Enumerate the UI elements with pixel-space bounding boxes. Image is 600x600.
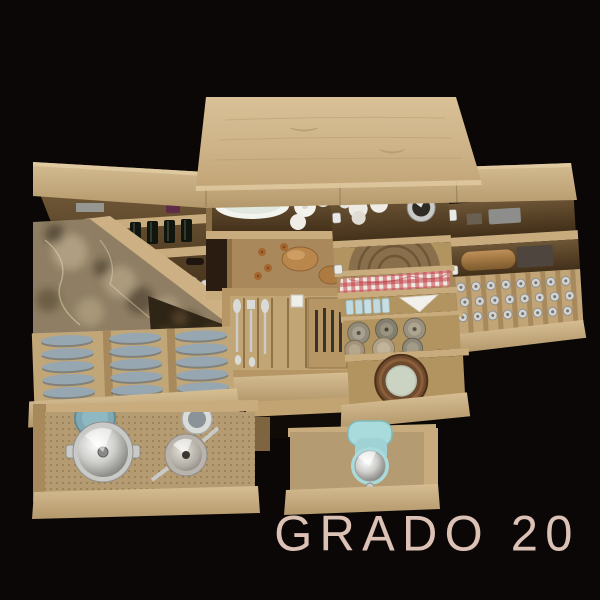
top-panel xyxy=(196,97,482,191)
product-render-page: GRADO 20 xyxy=(0,0,600,600)
plates xyxy=(41,330,229,400)
glass-plate xyxy=(385,365,417,397)
pots-and-pans-drawer xyxy=(32,398,260,519)
cutlery-drawer xyxy=(218,288,356,403)
stand-mixer-drawer xyxy=(284,421,440,515)
wood-grain-box xyxy=(461,249,516,271)
brand-wordmark: GRADO 20 xyxy=(275,504,580,562)
small-box xyxy=(291,295,303,307)
hinge xyxy=(334,265,342,274)
hinge xyxy=(332,213,341,223)
blue-jars xyxy=(346,298,390,314)
right-wing xyxy=(440,196,587,354)
